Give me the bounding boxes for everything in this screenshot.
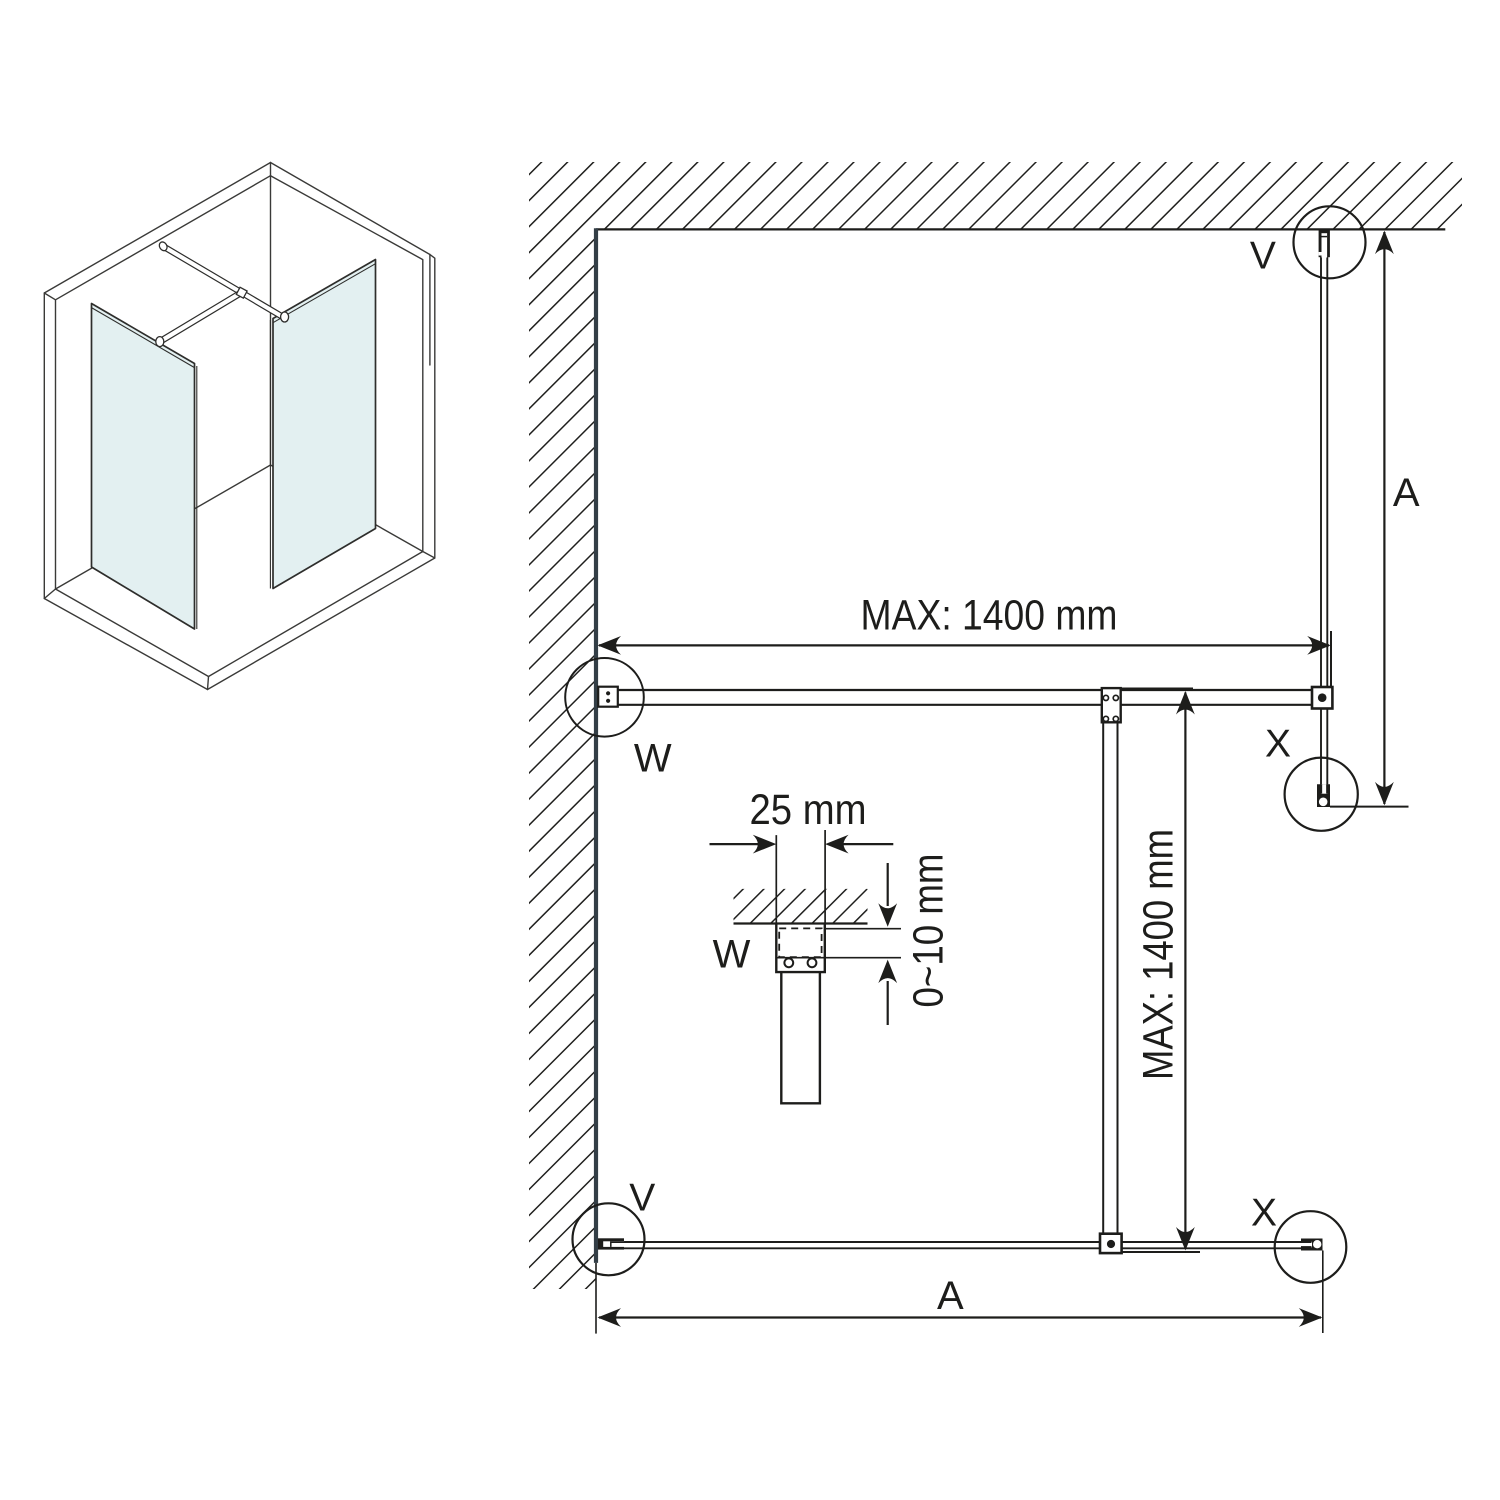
svg-text:A: A <box>1393 471 1420 515</box>
svg-text:MAX: 1400 mm: MAX: 1400 mm <box>1135 829 1183 1080</box>
svg-text:V: V <box>1250 235 1276 278</box>
svg-text:W: W <box>713 933 751 977</box>
svg-text:W: W <box>634 737 672 781</box>
svg-text:V: V <box>629 1177 655 1220</box>
svg-text:A: A <box>937 1274 964 1318</box>
svg-text:X: X <box>1251 1192 1277 1235</box>
svg-text:0~10 mm: 0~10 mm <box>905 854 953 1008</box>
svg-text:X: X <box>1265 723 1291 766</box>
svg-text:25 mm: 25 mm <box>750 786 867 834</box>
svg-text:MAX: 1400 mm: MAX: 1400 mm <box>861 592 1118 640</box>
